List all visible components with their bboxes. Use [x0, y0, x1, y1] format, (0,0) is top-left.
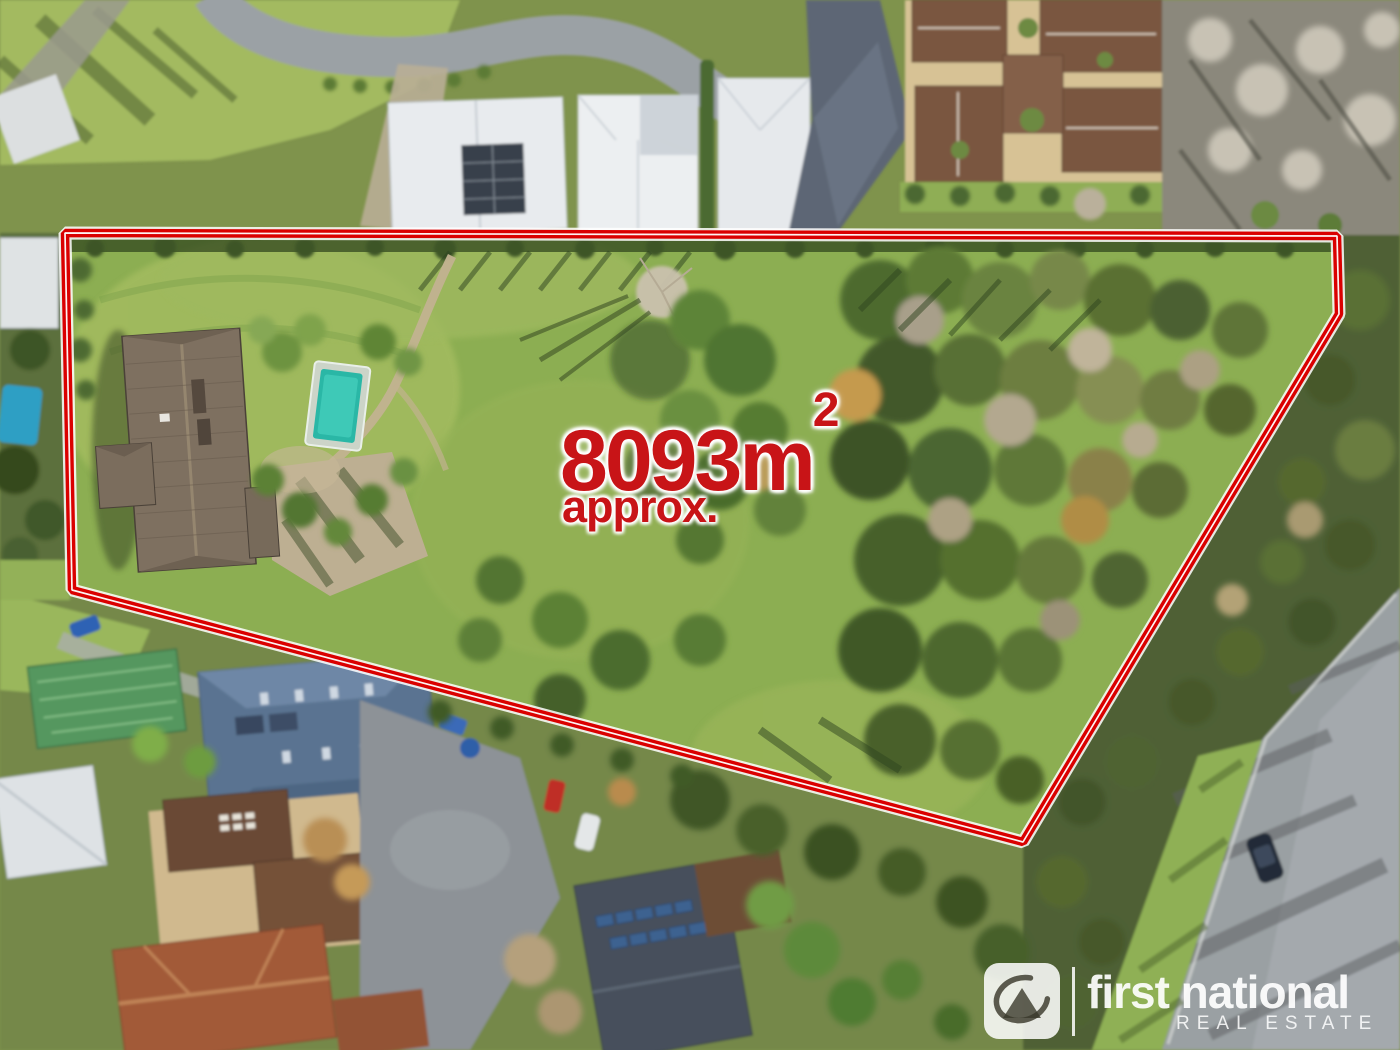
brown-roof-complex [905, 0, 1165, 190]
white-roof-house-2 [578, 95, 698, 235]
area-exponent: 2 [813, 384, 840, 437]
area-approx-label: approx. [562, 484, 718, 529]
aerial-photo-canvas: 8093m2 approx. first national REAL ESTAT… [0, 0, 1400, 1050]
white-roof-house-1 [388, 97, 568, 235]
neighbour-pool [0, 384, 43, 446]
swimming-pool [305, 361, 371, 451]
